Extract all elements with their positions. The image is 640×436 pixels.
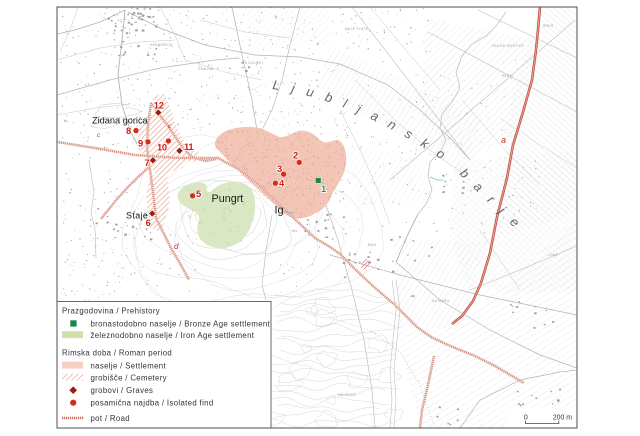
svg-text:MALENCE: MALENCE bbox=[338, 393, 356, 397]
svg-text:200 m: 200 m bbox=[553, 415, 572, 422]
svg-text:Zidana gorica: Zidana gorica bbox=[92, 116, 149, 126]
svg-text:Prazgodovina / Prehistory: Prazgodovina / Prehistory bbox=[62, 307, 160, 316]
svg-text:grobovi / Graves: grobovi / Graves bbox=[91, 386, 154, 395]
svg-text:Rimska doba / Roman period: Rimska doba / Roman period bbox=[62, 348, 172, 357]
svg-text:3: 3 bbox=[277, 163, 282, 174]
svg-text:pot / Road: pot / Road bbox=[91, 414, 130, 423]
svg-text:železnodobno naselje / Iron Ag: železnodobno naselje / Iron Age settleme… bbox=[91, 331, 255, 340]
svg-text:9: 9 bbox=[138, 137, 143, 148]
svg-text:KREMENICA: KREMENICA bbox=[150, 43, 173, 47]
svg-text:MAH: MAH bbox=[368, 243, 377, 247]
svg-text:bronastodobno naselje / Bronze: bronastodobno naselje / Bronze Age settl… bbox=[91, 319, 271, 328]
svg-text:d: d bbox=[174, 242, 179, 251]
svg-text:12: 12 bbox=[154, 100, 164, 111]
svg-text:BREG: BREG bbox=[543, 24, 554, 28]
svg-text:GMAJNA: GMAJNA bbox=[198, 67, 214, 71]
svg-text:5: 5 bbox=[196, 188, 201, 199]
svg-text:11: 11 bbox=[184, 141, 193, 152]
svg-text:7: 7 bbox=[144, 157, 149, 168]
svg-text:VELIKE MOSTICE: VELIKE MOSTICE bbox=[492, 44, 524, 48]
svg-text:Staje: Staje bbox=[126, 210, 148, 220]
svg-text:grobišče / Cemetery: grobišče / Cemetery bbox=[91, 373, 167, 382]
svg-text:naselje / Settlement: naselje / Settlement bbox=[91, 361, 167, 370]
svg-text:8: 8 bbox=[126, 125, 131, 136]
svg-text:MALE FLATE: MALE FLATE bbox=[345, 27, 368, 31]
svg-text:a: a bbox=[501, 135, 506, 145]
svg-text:Ig: Ig bbox=[275, 205, 284, 217]
svg-text:PARTI: PARTI bbox=[502, 74, 513, 78]
svg-text:2: 2 bbox=[293, 149, 298, 160]
svg-text:10: 10 bbox=[157, 141, 167, 152]
svg-text:LOKE: LOKE bbox=[548, 253, 558, 257]
svg-text:Pungrt: Pungrt bbox=[212, 193, 244, 205]
svg-text:NA MAHU: NA MAHU bbox=[432, 299, 450, 303]
svg-text:NA DOLGIH: NA DOLGIH bbox=[242, 61, 263, 65]
svg-text:0: 0 bbox=[524, 415, 528, 422]
svg-text:posamična najdba / Isolated fi: posamična najdba / Isolated find bbox=[91, 399, 214, 408]
svg-text:1: 1 bbox=[321, 183, 326, 194]
